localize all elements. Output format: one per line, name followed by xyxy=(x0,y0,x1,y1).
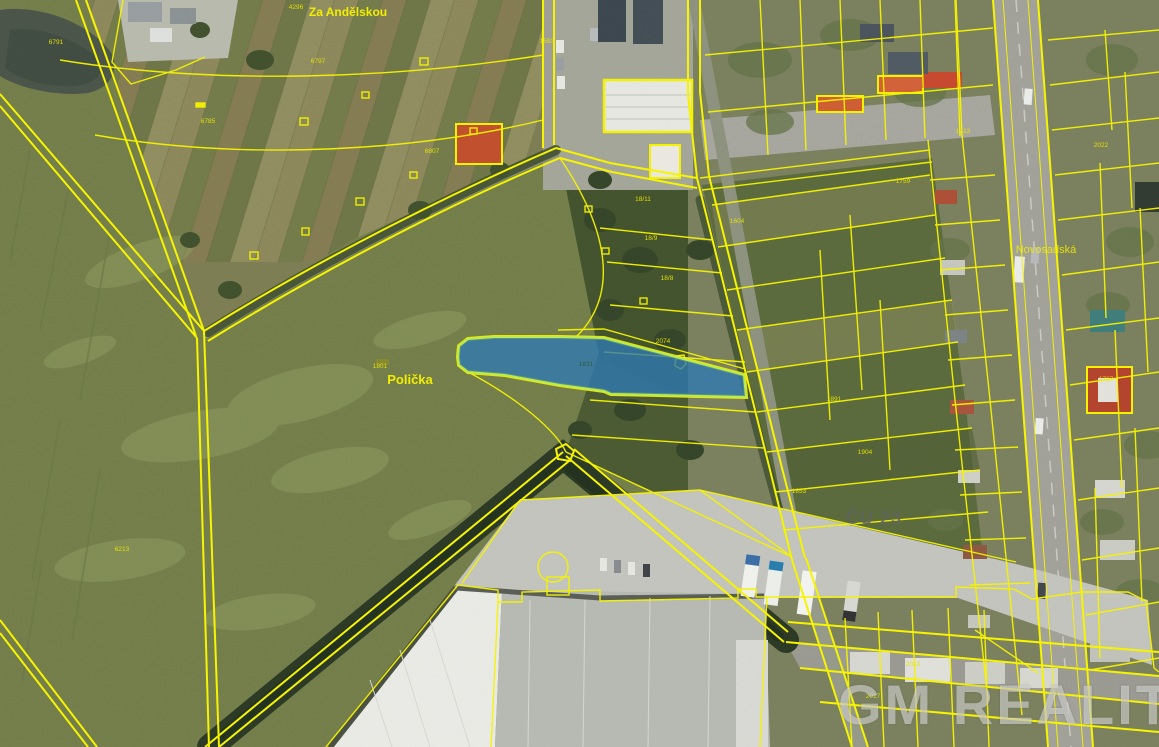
svg-text:6213: 6213 xyxy=(115,546,130,553)
svg-text:1801: 1801 xyxy=(373,363,388,370)
map-viewport[interactable]: Za AndělskouPolička Novosadská 679142966… xyxy=(0,0,1159,747)
svg-text:6797: 6797 xyxy=(311,58,326,65)
svg-text:1593: 1593 xyxy=(540,38,555,45)
svg-text:6785: 6785 xyxy=(201,118,216,125)
svg-text:Novosadská: Novosadská xyxy=(1016,244,1077,256)
svg-text:1891: 1891 xyxy=(827,396,842,403)
street-labels: Novosadská xyxy=(1016,244,1077,256)
svg-text:1604: 1604 xyxy=(730,218,745,225)
svg-text:1759: 1759 xyxy=(896,178,911,185)
svg-text:18/9: 18/9 xyxy=(645,235,658,242)
svg-text:4296: 4296 xyxy=(289,4,304,11)
svg-text:2074: 2074 xyxy=(656,338,671,345)
svg-text:18/8: 18/8 xyxy=(661,275,674,282)
svg-text:1853: 1853 xyxy=(792,488,807,495)
svg-text:2022: 2022 xyxy=(1094,142,1109,149)
svg-text:1831: 1831 xyxy=(579,361,594,368)
map-svg: Za AndělskouPolička Novosadská 679142966… xyxy=(0,0,1159,747)
svg-text:18/11: 18/11 xyxy=(635,196,651,203)
svg-text:Polička: Polička xyxy=(387,372,433,387)
svg-text:1904: 1904 xyxy=(858,449,873,456)
svg-text:6791: 6791 xyxy=(49,39,64,46)
watermark-brand: GM REALITY xyxy=(838,672,1159,737)
svg-text:Za Andělskou: Za Andělskou xyxy=(309,5,387,19)
svg-text:2013: 2013 xyxy=(906,661,921,668)
svg-text:1727: 1727 xyxy=(1099,376,1114,383)
svg-text:6807: 6807 xyxy=(425,148,440,155)
svg-text:1713: 1713 xyxy=(956,128,971,135)
watermark-secondary: ČU 23 xyxy=(846,508,902,529)
